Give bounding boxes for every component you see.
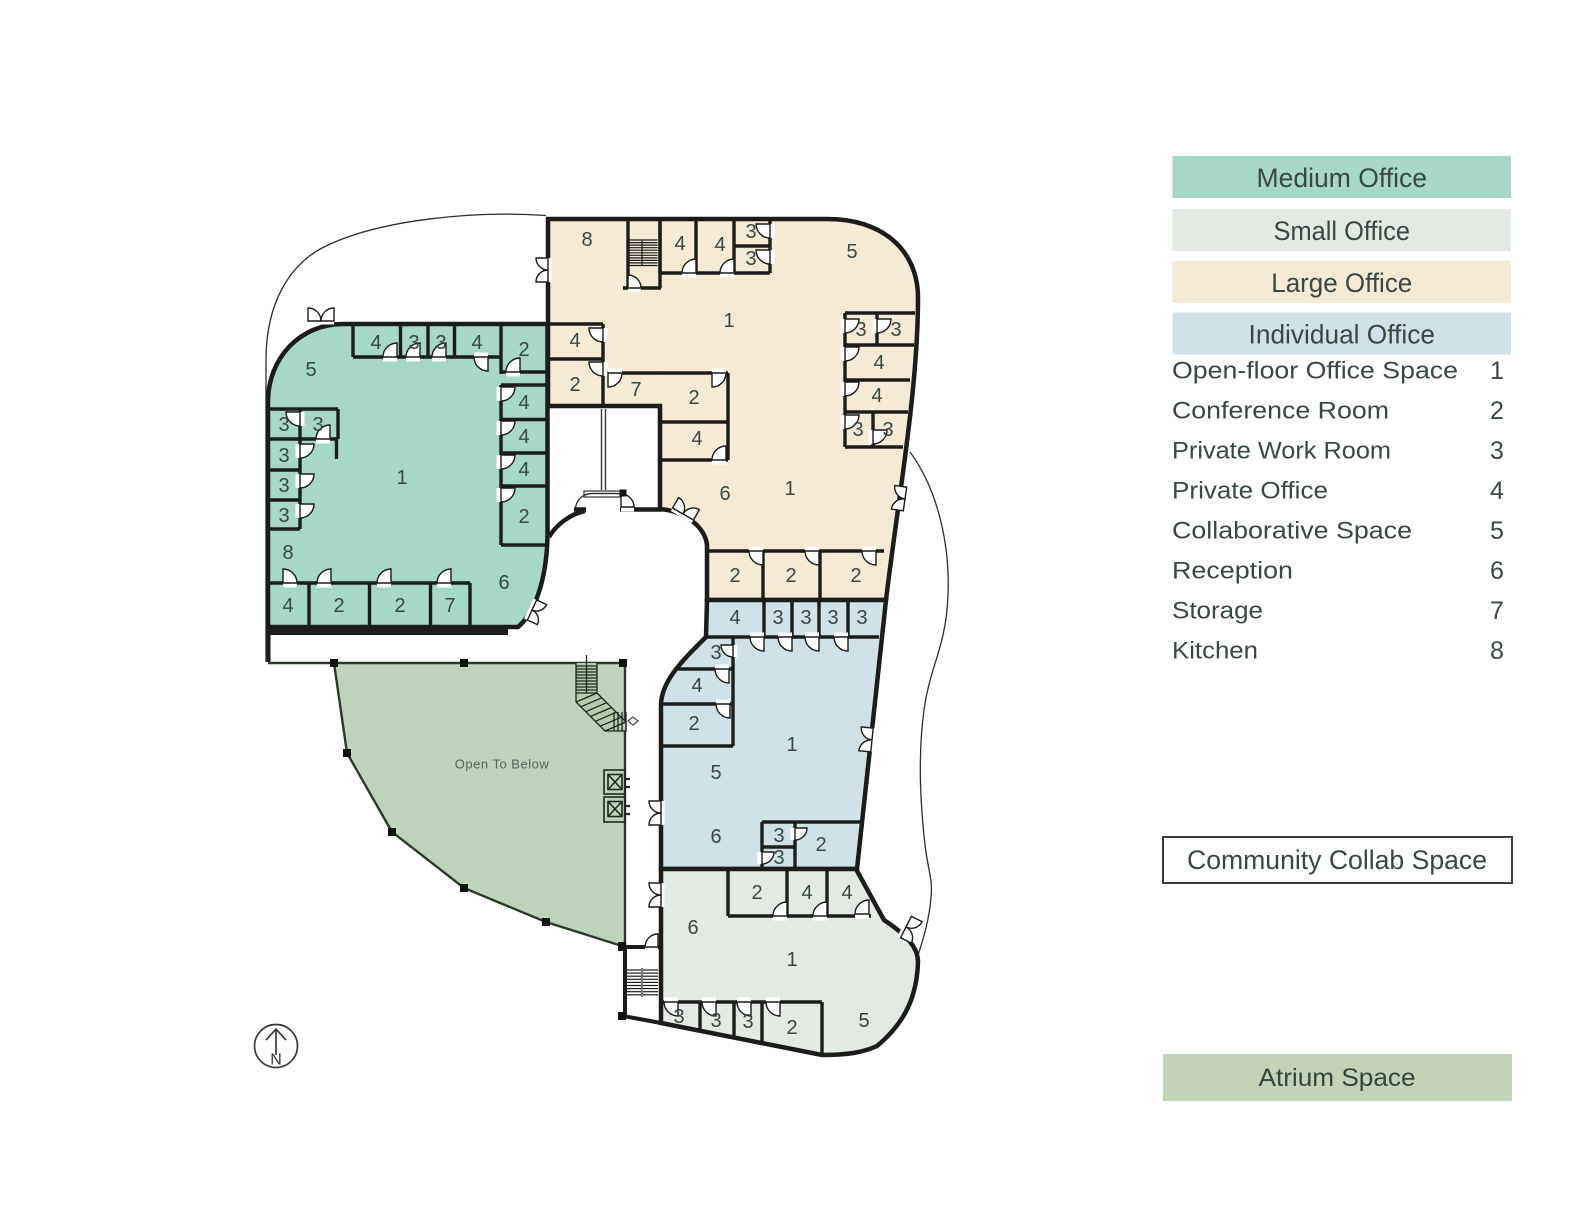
svg-text:Medium Office: Medium Office [1257, 163, 1428, 193]
svg-text:5: 5 [710, 762, 721, 784]
svg-text:2: 2 [333, 595, 344, 617]
svg-text:2: 2 [786, 1017, 797, 1039]
svg-text:4: 4 [691, 428, 702, 450]
svg-text:1: 1 [786, 949, 797, 971]
svg-text:3: 3 [408, 332, 419, 354]
svg-text:4: 4 [471, 332, 482, 354]
svg-text:3: 3 [278, 505, 289, 527]
svg-text:4: 4 [801, 882, 812, 904]
svg-text:1: 1 [723, 310, 734, 332]
svg-text:7: 7 [630, 379, 641, 401]
svg-text:4: 4 [841, 882, 852, 904]
svg-text:2: 2 [1490, 397, 1504, 425]
svg-text:3: 3 [773, 847, 784, 869]
svg-text:2: 2 [815, 834, 826, 856]
svg-text:3: 3 [742, 1011, 753, 1033]
svg-text:6: 6 [710, 826, 721, 848]
svg-text:Open-floor Office Space: Open-floor Office Space [1172, 358, 1458, 385]
svg-text:N: N [270, 1052, 282, 1069]
svg-text:3: 3 [772, 607, 783, 629]
svg-text:Storage: Storage [1172, 598, 1263, 625]
svg-text:4: 4 [873, 352, 884, 374]
svg-text:3: 3 [773, 825, 784, 847]
svg-text:Private Office: Private Office [1172, 478, 1328, 505]
svg-text:3: 3 [278, 475, 289, 497]
svg-text:3: 3 [710, 1010, 721, 1032]
svg-text:Large Office: Large Office [1271, 268, 1412, 298]
svg-text:4: 4 [282, 595, 293, 617]
svg-text:6: 6 [498, 572, 509, 594]
svg-text:3: 3 [890, 319, 901, 341]
svg-text:4: 4 [729, 607, 740, 629]
svg-text:2: 2 [518, 506, 529, 528]
svg-text:Small Office: Small Office [1274, 216, 1410, 246]
svg-text:6: 6 [1490, 557, 1504, 585]
svg-text:3: 3 [312, 414, 323, 436]
svg-text:6: 6 [687, 917, 698, 939]
svg-text:2: 2 [569, 374, 580, 396]
svg-text:3: 3 [673, 1006, 684, 1028]
svg-text:Conference Room: Conference Room [1172, 398, 1389, 425]
svg-text:8: 8 [282, 542, 293, 564]
svg-text:8: 8 [1490, 637, 1504, 665]
svg-text:2: 2 [688, 713, 699, 735]
svg-text:4: 4 [714, 234, 725, 256]
svg-text:8: 8 [581, 229, 592, 251]
svg-text:3: 3 [852, 419, 863, 441]
svg-text:4: 4 [691, 675, 702, 697]
svg-text:4: 4 [674, 233, 685, 255]
svg-text:1: 1 [1490, 357, 1504, 385]
svg-text:4: 4 [370, 332, 381, 354]
svg-text:4: 4 [1490, 477, 1504, 505]
svg-text:3: 3 [745, 221, 756, 243]
svg-text:1: 1 [784, 478, 795, 500]
svg-text:2: 2 [729, 565, 740, 587]
svg-text:2: 2 [850, 565, 861, 587]
svg-text:Collaborative Space: Collaborative Space [1172, 518, 1412, 545]
svg-text:1: 1 [396, 467, 407, 489]
svg-text:3: 3 [856, 607, 867, 629]
svg-text:5: 5 [846, 241, 857, 263]
svg-text:7: 7 [444, 595, 455, 617]
svg-text:Reception: Reception [1172, 558, 1293, 585]
svg-text:Kitchen: Kitchen [1172, 638, 1258, 665]
svg-text:Open To Below: Open To Below [455, 757, 550, 772]
svg-text:4: 4 [569, 330, 580, 352]
svg-text:7: 7 [1490, 597, 1504, 625]
svg-text:Atrium Space: Atrium Space [1259, 1064, 1416, 1092]
svg-text:5: 5 [858, 1010, 869, 1032]
svg-text:3: 3 [827, 607, 838, 629]
svg-text:2: 2 [751, 882, 762, 904]
svg-text:6: 6 [719, 483, 730, 505]
svg-text:2: 2 [785, 565, 796, 587]
svg-text:3: 3 [435, 332, 446, 354]
svg-text:3: 3 [882, 419, 893, 441]
svg-text:3: 3 [278, 414, 289, 436]
svg-text:3: 3 [710, 642, 721, 664]
svg-text:2: 2 [394, 595, 405, 617]
svg-text:2: 2 [518, 339, 529, 361]
svg-text:1: 1 [786, 734, 797, 756]
svg-text:3: 3 [278, 445, 289, 467]
svg-text:5: 5 [1490, 517, 1504, 545]
svg-text:4: 4 [518, 426, 529, 448]
svg-text:4: 4 [871, 385, 882, 407]
svg-text:3: 3 [855, 319, 866, 341]
svg-text:5: 5 [305, 359, 316, 381]
svg-text:2: 2 [688, 387, 699, 409]
svg-text:Private Work Room: Private Work Room [1172, 438, 1391, 465]
svg-text:Individual Office: Individual Office [1249, 320, 1435, 350]
svg-text:4: 4 [518, 392, 529, 414]
svg-text:3: 3 [1490, 437, 1504, 465]
svg-text:3: 3 [800, 607, 811, 629]
svg-text:3: 3 [745, 248, 756, 270]
svg-text:4: 4 [518, 459, 529, 481]
svg-text:Community Collab Space: Community Collab Space [1187, 845, 1487, 875]
